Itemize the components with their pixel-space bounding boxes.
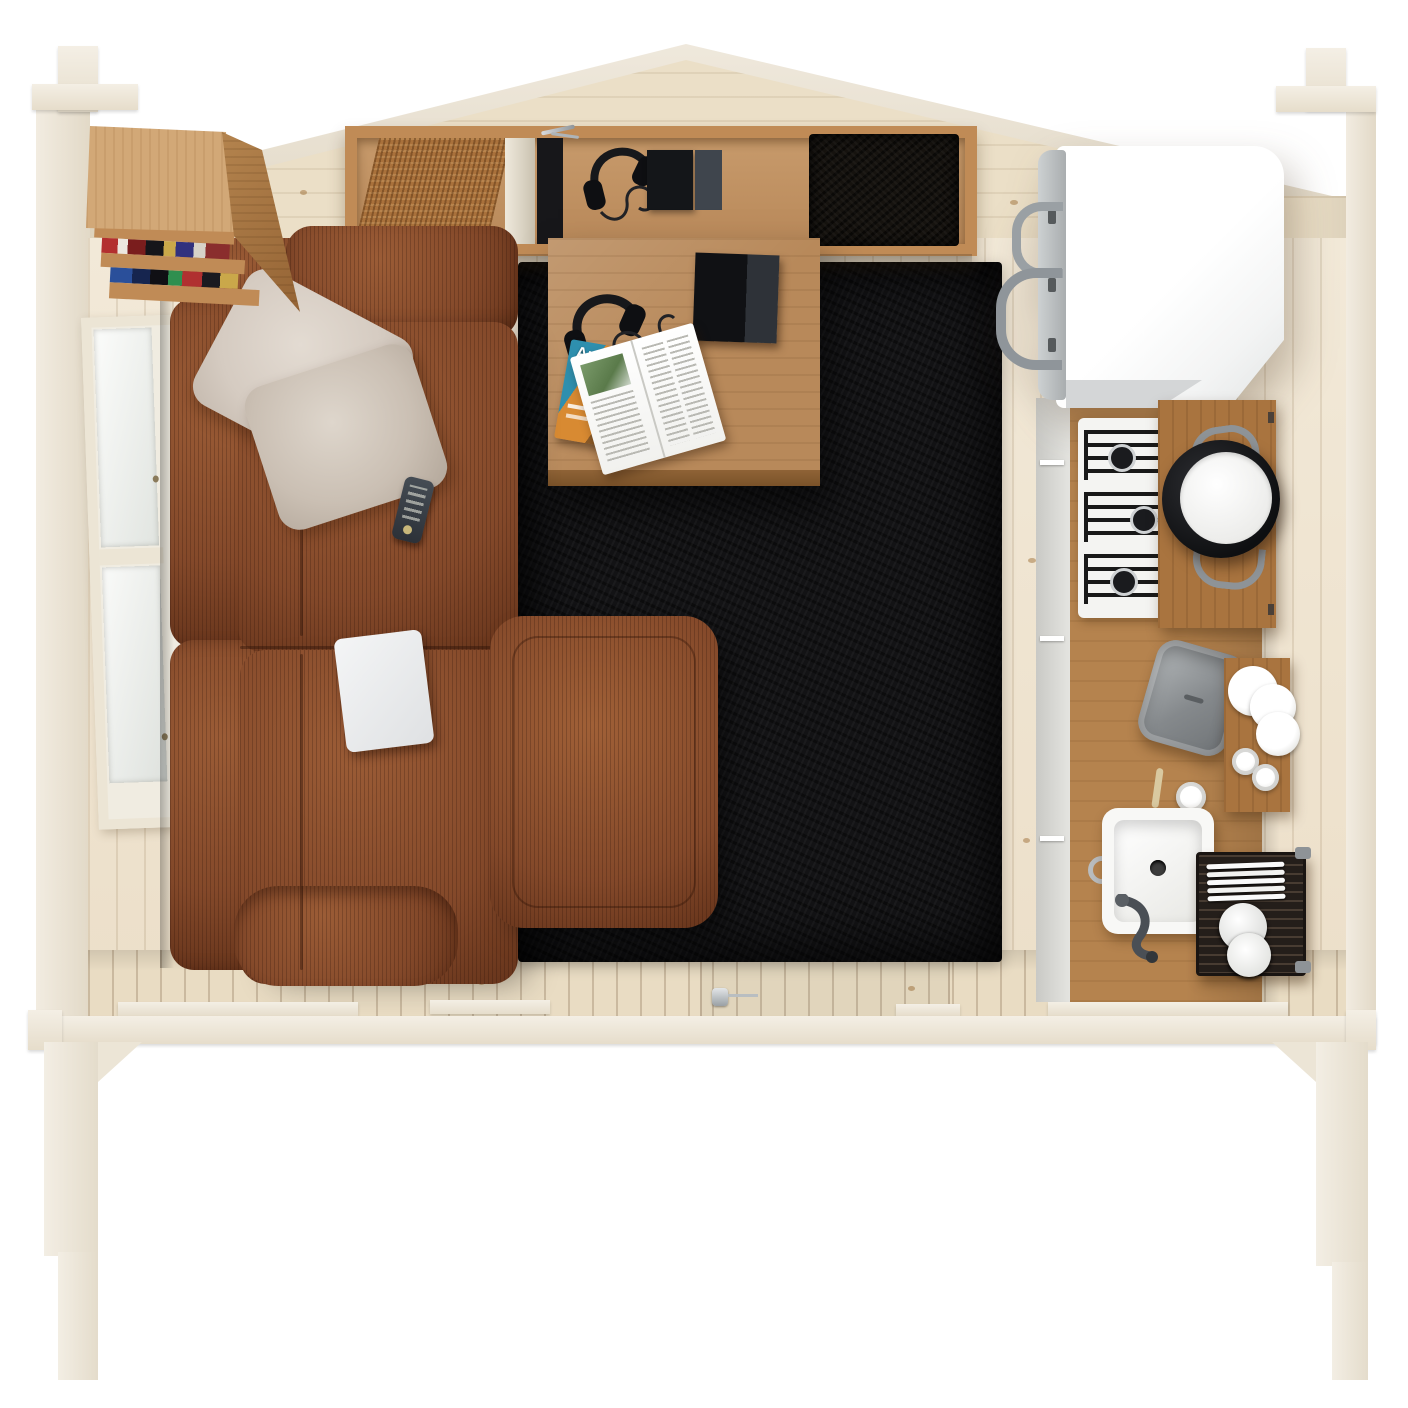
bowl <box>1227 933 1271 977</box>
sofa-seam <box>300 654 303 970</box>
cup <box>1252 764 1279 791</box>
dish-rack <box>1196 852 1306 976</box>
faucet <box>1112 894 1166 968</box>
ottoman <box>490 616 718 928</box>
tablet-on-table <box>692 253 779 344</box>
bookshelf-top-face <box>86 118 234 236</box>
plate-edge <box>1207 886 1285 894</box>
basin-slot <box>1183 694 1204 704</box>
tablet-gray <box>695 150 722 210</box>
pot-lid <box>1180 452 1272 544</box>
fridge-handle <box>1012 202 1063 278</box>
wood-knot <box>1010 200 1018 205</box>
left-leg-lower <box>58 1252 98 1380</box>
cabin-topdown-scene: Arch <box>0 0 1408 1408</box>
right-leg-lower <box>1332 1262 1368 1380</box>
right-leg-upper <box>1316 1042 1368 1266</box>
left-leg-bracket <box>98 1042 142 1082</box>
wood-knot <box>1028 558 1036 563</box>
kitchen-cabinet-fronts <box>1036 398 1072 1002</box>
door-handle-rod <box>728 994 758 997</box>
front-top-board <box>896 1004 960 1016</box>
board-hinge <box>1268 604 1274 615</box>
dark-panel <box>537 138 563 244</box>
plate-edge <box>1207 894 1285 902</box>
plate-edge <box>1207 878 1285 886</box>
fridge-body <box>1056 146 1284 408</box>
window-hinge <box>153 475 159 482</box>
rack-foot <box>1295 847 1311 859</box>
right-purlin-beam <box>1276 86 1376 112</box>
sink-drain <box>1150 860 1166 876</box>
left-leg-upper <box>44 1042 98 1256</box>
rack-foot <box>1295 961 1311 973</box>
board-hinge <box>1268 412 1274 423</box>
cabinet-handle <box>1040 836 1064 841</box>
coffee-table: Arch <box>548 238 820 486</box>
left-purlin-beam <box>32 84 138 110</box>
window-pane-lower <box>102 565 168 783</box>
plate-edge <box>1207 870 1285 878</box>
cabinet-handle <box>1040 460 1064 465</box>
front-top-board <box>118 1002 358 1016</box>
sofa-bottom-cushion <box>234 886 458 986</box>
mirror-strip <box>505 138 535 244</box>
burner-cap <box>1110 568 1138 596</box>
right-wall-outer-edge <box>1346 104 1376 1040</box>
plate-edge <box>1206 862 1284 870</box>
front-base-beam <box>34 1016 1376 1044</box>
front-top-board <box>430 1000 550 1014</box>
front-top-board <box>1048 1002 1288 1016</box>
remote-buttons <box>402 485 428 522</box>
remote-ok-button <box>402 524 413 535</box>
wood-knot <box>300 190 307 195</box>
magazine-text-column <box>591 390 651 464</box>
fridge <box>1038 146 1284 408</box>
plate <box>1256 712 1300 756</box>
laptop-closed <box>333 629 434 753</box>
window-pane-upper <box>94 328 160 548</box>
fridge-handle <box>996 268 1062 370</box>
wood-knot <box>1023 838 1030 843</box>
burner-cap <box>1130 506 1158 534</box>
left-wall-outer-edge <box>36 104 90 1040</box>
ottoman-stitch <box>512 636 696 908</box>
magazine-cover-line <box>566 413 588 421</box>
magazine-photo <box>580 353 631 396</box>
window-middle-rail <box>99 547 164 565</box>
burner-cap <box>1108 444 1136 472</box>
right-leg-bracket <box>1272 1042 1316 1082</box>
rack-plates <box>1206 862 1287 903</box>
leather-panel <box>809 134 959 246</box>
tablet-black <box>647 150 693 210</box>
coffee-table-edge <box>548 470 820 486</box>
cabinet-handle <box>1040 636 1064 641</box>
door-handle <box>712 988 728 1006</box>
